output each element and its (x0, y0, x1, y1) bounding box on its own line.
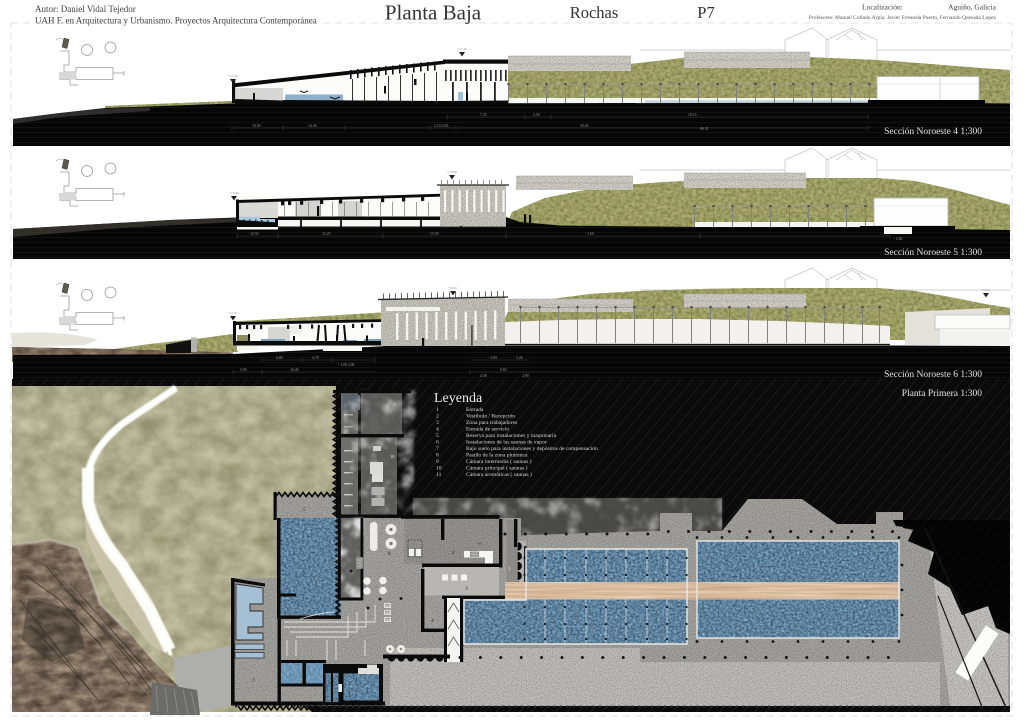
svg-text:+11.40: +11.40 (228, 74, 238, 78)
svg-text:- 1.60: - 1.60 (585, 232, 594, 236)
svg-text:Zona para trabajadores: Zona para trabajadores (466, 420, 517, 426)
svg-text:15.50: 15.50 (430, 232, 439, 236)
svg-text:2: 2 (436, 414, 439, 420)
svg-text:7: 7 (252, 678, 255, 684)
svg-text:1: 1 (436, 407, 439, 413)
svg-text:7.25: 7.25 (480, 113, 487, 117)
svg-text:+10.90: +10.90 (229, 191, 239, 195)
svg-text:11: 11 (436, 472, 442, 478)
svg-text:Bajo suelo para instalaciones: Bajo suelo para instalaciones y depósito… (466, 446, 598, 452)
svg-text:3: 3 (465, 586, 468, 592)
svg-text:15.25: 15.25 (322, 232, 331, 236)
svg-text:Entrada: Entrada (466, 407, 484, 413)
svg-text:10.50: 10.50 (250, 232, 259, 236)
svg-text:10.15: 10.15 (688, 113, 697, 117)
svg-text:16.40: 16.40 (290, 368, 299, 372)
svg-text:14.30: 14.30 (308, 124, 317, 128)
svg-text:Planta Primera 1:300: Planta Primera 1:300 (902, 389, 982, 399)
svg-text:5: 5 (436, 433, 439, 439)
svg-text:P7: P7 (697, 3, 714, 22)
svg-text:Reserva para instalaciones y m: Reserva para instalaciones y maquinaria (466, 433, 557, 439)
svg-text:5: 5 (303, 507, 306, 513)
svg-text:Entrada de servicio: Entrada de servicio (466, 427, 509, 433)
svg-text:+10.90: +10.90 (447, 170, 457, 174)
svg-text:3: 3 (436, 420, 439, 426)
svg-text:Sección Noroeste 4 1:300: Sección Noroeste 4 1:300 (884, 127, 982, 137)
svg-text:10.50: 10.50 (252, 124, 261, 128)
svg-text:96.31: 96.31 (700, 127, 709, 131)
svg-text:5.26: 5.26 (516, 356, 523, 360)
svg-text:6: 6 (388, 551, 391, 557)
svg-text:+10 m: +10 m (981, 288, 990, 292)
svg-text:Aguiño, Galicia: Aguiño, Galicia (948, 3, 997, 12)
svg-text:Localización:: Localización: (862, 3, 903, 12)
svg-text:Cámara intermedia ( saunas ): Cámara intermedia ( saunas ) (466, 458, 532, 465)
svg-text:10: 10 (436, 466, 442, 472)
svg-text:- 3.69: - 3.69 (488, 356, 497, 360)
svg-text:2.10 2.00: 2.10 2.00 (434, 124, 448, 128)
svg-text:2: 2 (452, 550, 455, 556)
svg-text:Cámara principal ( saunas ): Cámara principal ( saunas ) (466, 465, 528, 472)
svg-text:Sección Noroeste 5 1:300: Sección Noroeste 5 1:300 (884, 248, 982, 258)
svg-text:5.80: 5.80 (240, 368, 247, 372)
svg-text:Rochas: Rochas (570, 3, 619, 22)
svg-text:Sección Noroeste 6 1:300: Sección Noroeste 6 1:300 (884, 370, 982, 380)
svg-text:9.82: 9.82 (500, 368, 507, 372)
svg-text:7: 7 (436, 446, 439, 452)
svg-text:2.50: 2.50 (533, 113, 540, 117)
svg-text:4: 4 (431, 618, 434, 624)
svg-text:Pasillo de la zona plutónica: Pasillo de la zona plutónica (466, 453, 528, 459)
svg-text:Vestíbulo / Recepción: Vestíbulo / Recepción (466, 414, 515, 420)
svg-text:35.65: 35.65 (580, 124, 589, 128)
svg-text:Leyenda: Leyenda (434, 391, 483, 406)
svg-text:- 1.00 2.00: - 1.00 2.00 (338, 363, 355, 367)
svg-text:Instalaciones de las saunas de: Instalaciones de las saunas de vapor (466, 440, 547, 446)
svg-text:Autor: Daniel Vidal Tejedor: Autor: Daniel Vidal Tejedor (35, 4, 136, 14)
svg-text:+10 m: +10 m (448, 286, 457, 290)
svg-text:9: 9 (436, 459, 439, 465)
svg-text:4.58: 4.58 (480, 374, 487, 378)
svg-text:+11.40: +11.40 (457, 47, 467, 51)
svg-text:8: 8 (436, 453, 439, 459)
svg-text:+11 m: +11 m (228, 311, 237, 315)
svg-text:- 2.60: - 2.60 (894, 237, 903, 241)
svg-text:6: 6 (436, 440, 439, 446)
svg-text:10: 10 (390, 454, 395, 459)
svg-text:Cámara aromáticas ( saunas ): Cámara aromáticas ( saunas ) (466, 471, 532, 478)
svg-text:UAH F. en Arquitectura y Urban: UAH F. en Arquitectura y Urbanismo. Proy… (35, 16, 317, 26)
svg-text:Profesores: Manuel Collado A: Profesores: Manuel Collado Arpía, Javier… (809, 14, 997, 21)
svg-text:6.80: 6.80 (276, 356, 283, 360)
svg-text:4.78: 4.78 (312, 356, 319, 360)
svg-text:×9: ×9 (477, 542, 481, 546)
svg-text:11: 11 (392, 402, 396, 407)
svg-text:4.90: 4.90 (522, 374, 529, 378)
svg-text:4: 4 (436, 427, 439, 433)
svg-text:Planta Baja: Planta Baja (385, 1, 482, 25)
